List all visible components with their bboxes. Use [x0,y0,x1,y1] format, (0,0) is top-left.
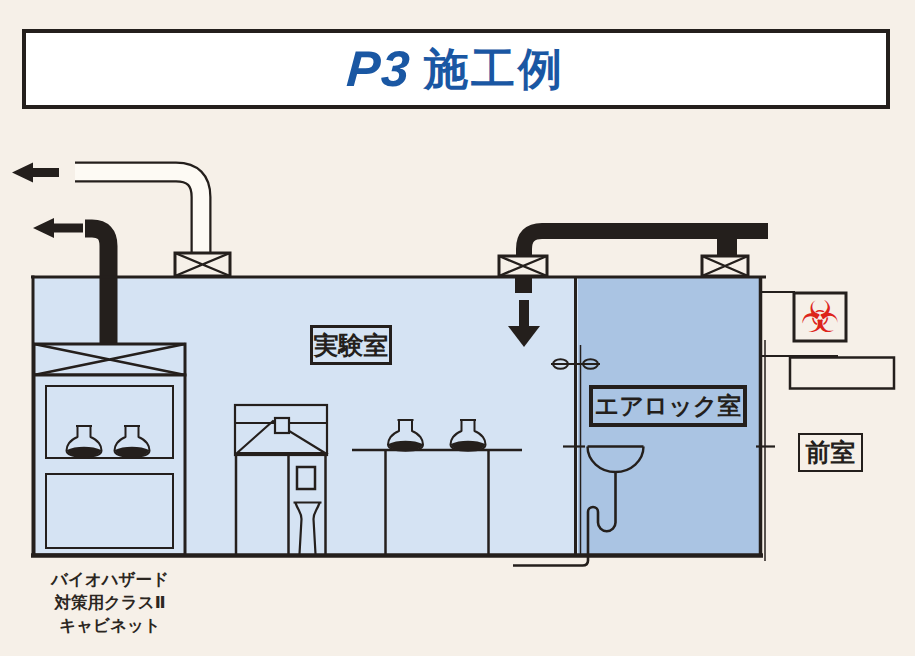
exhaust-arrow-icon [12,163,59,183]
clean-exhaust-duct [75,172,201,253]
cabinet-caption-line3: キャビネット [25,614,195,637]
title-p3: P3 [345,40,412,98]
anteroom-label: 前室 [798,433,863,472]
pass-box [790,358,894,389]
title-text: 施工例 [424,40,565,99]
airlock-room-label: エアロック室 [589,385,747,427]
p3-lab-construction-diagram: P3 施工例 実験室 エアロック室 前室 ☣ バイオハザード 対策用クラスⅡ キ… [0,0,915,656]
cabinet-caption: バイオハザード 対策用クラスⅡ キャビネット [25,568,195,637]
cabinet-caption-line2: 対策用クラスⅡ [25,591,195,614]
top-air-duct [524,231,768,257]
biosafety-cabinet [34,344,185,555]
hepa-filter-lab-exhaust [175,253,230,276]
lab-room-label: 実験室 [310,325,392,365]
cabinet-caption-line1: バイオハザード [25,568,195,591]
biohazard-icon: ☣ [794,293,846,341]
hepa-filter-supply [499,256,547,276]
hepa-filter-cabinet [34,344,185,375]
cabinet-exhaust-arrow-icon [33,218,83,238]
supply-duct-stub [515,277,532,293]
title-bar: P3 施工例 [22,29,890,109]
hepa-filter-airlock [702,256,748,276]
